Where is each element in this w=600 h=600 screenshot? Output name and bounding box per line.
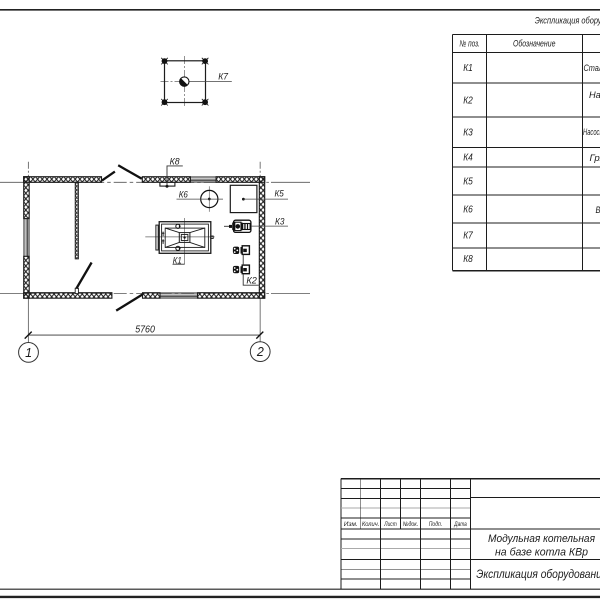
svg-text:К6: К6 — [179, 190, 188, 200]
svg-text:К1: К1 — [463, 63, 473, 74]
svg-text:К7: К7 — [218, 71, 228, 82]
svg-text:Подп.: Подп. — [429, 520, 443, 528]
svg-text:К7: К7 — [463, 230, 473, 241]
svg-text:1: 1 — [25, 346, 32, 360]
svg-text:К4: К4 — [463, 153, 473, 164]
svg-text:Изм.: Изм. — [344, 521, 358, 528]
svg-text:К1: К1 — [173, 255, 182, 265]
svg-text:5760: 5760 — [135, 324, 155, 335]
svg-text:К6: К6 — [463, 204, 473, 215]
svg-text:на базе котла КВр: на базе котла КВр — [495, 547, 588, 559]
svg-text:К8: К8 — [463, 254, 473, 265]
svg-text:Модульная котельная: Модульная котельная — [488, 533, 595, 545]
svg-text:Вентилятор: Вентилятор — [596, 205, 600, 216]
svg-text:Колич.: Колич. — [362, 521, 380, 528]
svg-text:Насосы: Насосы — [589, 90, 600, 101]
svg-text:К5: К5 — [275, 189, 285, 199]
svg-text:Насосы сетевые: Насосы сетевые — [583, 127, 600, 138]
svg-text:К5: К5 — [463, 176, 473, 187]
svg-text:Экспликация оборудования: Экспликация оборудования — [535, 16, 600, 27]
svg-text:№док.: №док. — [403, 520, 419, 528]
svg-text:К8: К8 — [170, 157, 180, 167]
svg-text:К2: К2 — [246, 276, 257, 286]
svg-text:Дата: Дата — [454, 521, 468, 528]
svg-text:Обозначение: Обозначение — [513, 38, 556, 48]
svg-text:К2: К2 — [463, 95, 473, 106]
svg-text:К3: К3 — [275, 216, 284, 226]
svg-text:К3: К3 — [463, 127, 473, 138]
svg-text:Грязевик: Грязевик — [590, 153, 600, 164]
svg-text:Стальной котел: Стальной котел — [584, 63, 600, 74]
svg-text:2: 2 — [256, 345, 264, 359]
svg-text:Экспликация оборудования: Экспликация оборудования — [476, 569, 600, 581]
svg-text:№ поз.: № поз. — [459, 38, 480, 48]
svg-text:Лист: Лист — [384, 521, 398, 528]
